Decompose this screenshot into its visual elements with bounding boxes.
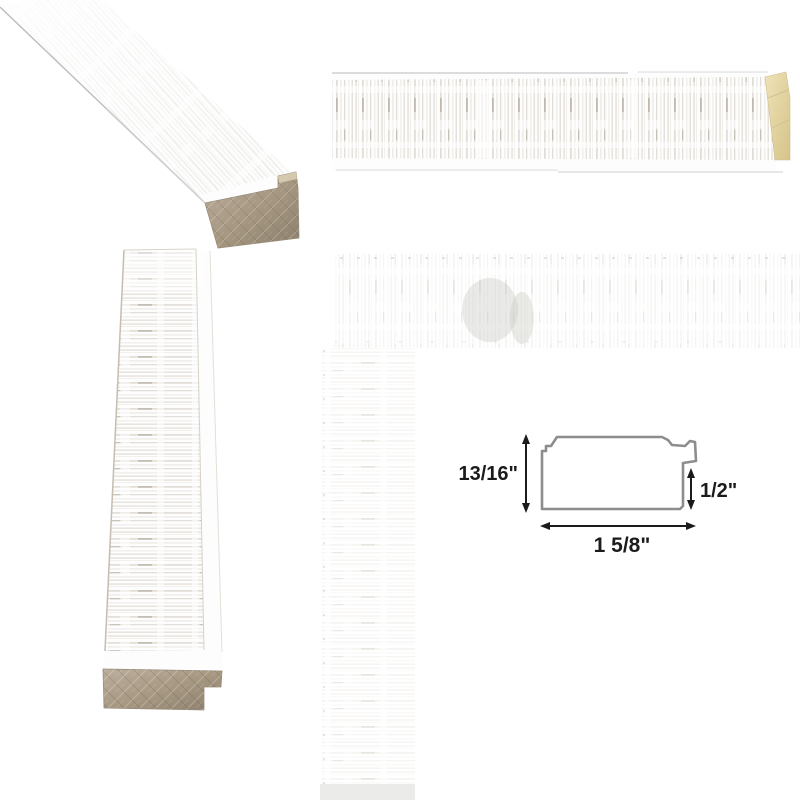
rabbet-arrow [687,468,695,510]
photo-corner-angle [0,0,320,270]
distressed-face-texture [332,77,775,160]
product-image-collage: 13/16" 1/2" 1 5/8" [0,0,800,800]
faded-horizontal-rail [335,254,800,348]
height-arrow [522,434,530,513]
photo-strip-vertical [92,244,232,720]
photo-strip-horizontal [328,68,800,178]
raw-wood-end-cut [103,669,222,710]
distressed-face-texture [105,249,204,651]
rabbet-label: 1/2" [700,480,737,502]
faded-vertical-rail [322,345,415,800]
dimension-diagram: 13/16" 1/2" 1 5/8" [440,420,770,565]
width-label: 1 5/8" [594,534,651,557]
profile-outline [542,437,696,509]
width-arrow [540,522,696,530]
height-label: 13/16" [458,463,518,485]
